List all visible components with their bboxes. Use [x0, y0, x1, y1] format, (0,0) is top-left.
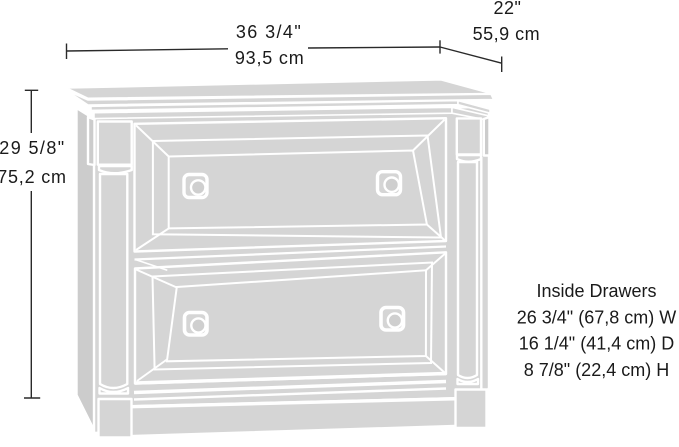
svg-text:22": 22" — [494, 0, 522, 18]
svg-text:93,5 cm: 93,5 cm — [235, 48, 305, 68]
svg-text:26 3/4" (67,8 cm) W: 26 3/4" (67,8 cm) W — [517, 308, 676, 328]
svg-text:16 1/4" (41,4 cm) D: 16 1/4" (41,4 cm) D — [519, 334, 674, 354]
svg-text:55,9 cm: 55,9 cm — [473, 24, 541, 44]
svg-text:8 7/8" (22,4 cm) H: 8 7/8" (22,4 cm) H — [524, 360, 669, 380]
svg-text:75,2 cm: 75,2 cm — [0, 167, 67, 187]
svg-text:29 5/8": 29 5/8" — [0, 138, 66, 158]
svg-text:36 3/4": 36 3/4" — [236, 22, 302, 42]
svg-text:Inside Drawers: Inside Drawers — [536, 281, 656, 301]
